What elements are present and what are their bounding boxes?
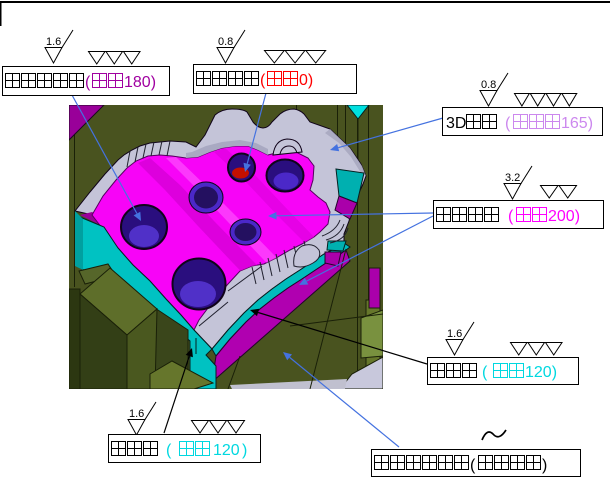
- svg-text:(: (: [470, 457, 476, 474]
- svg-text:1.6: 1.6: [129, 408, 144, 420]
- svg-text:(: (: [482, 364, 488, 381]
- svg-text:200): 200): [548, 208, 580, 225]
- svg-text:3.2: 3.2: [505, 172, 520, 184]
- svg-text:180): 180): [124, 74, 156, 91]
- svg-text:0.8: 0.8: [481, 79, 496, 91]
- svg-text:1.6: 1.6: [447, 328, 462, 340]
- svg-text:0.8: 0.8: [218, 36, 233, 48]
- svg-text:): ): [542, 457, 547, 474]
- svg-text:165): 165): [561, 115, 593, 132]
- svg-text:(: (: [166, 442, 172, 459]
- svg-text:(: (: [260, 72, 266, 89]
- svg-text:(: (: [508, 208, 514, 225]
- svg-text:): ): [242, 442, 247, 459]
- svg-text:3D: 3D: [446, 115, 466, 132]
- svg-text:0): 0): [299, 72, 313, 89]
- svg-text:(: (: [505, 115, 511, 132]
- svg-text:1.6: 1.6: [46, 36, 61, 48]
- svg-text:120): 120): [525, 364, 557, 381]
- svg-text:(: (: [85, 74, 91, 91]
- svg-text:120: 120: [213, 442, 240, 459]
